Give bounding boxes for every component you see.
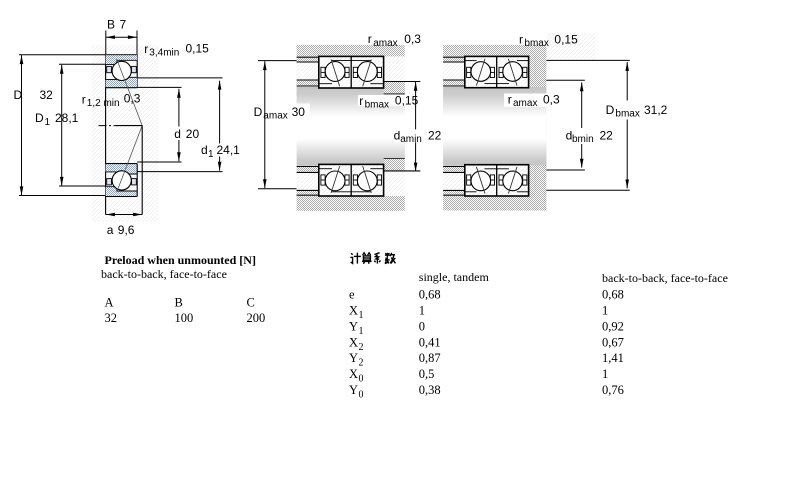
svg-text:20: 20 bbox=[186, 127, 200, 141]
svg-text:2: 2 bbox=[359, 358, 364, 369]
svg-text:C: C bbox=[247, 296, 255, 310]
svg-text:bmin: bmin bbox=[572, 134, 594, 145]
svg-text:31,2: 31,2 bbox=[644, 103, 668, 117]
svg-text:1: 1 bbox=[45, 117, 51, 128]
svg-text:0,87: 0,87 bbox=[419, 351, 441, 365]
svg-text:bmax: bmax bbox=[524, 38, 548, 49]
svg-text:1: 1 bbox=[359, 326, 364, 337]
svg-text:d: d bbox=[201, 143, 208, 157]
svg-text:amin: amin bbox=[400, 134, 422, 145]
svg-text:1: 1 bbox=[208, 149, 214, 160]
svg-text:3,4min: 3,4min bbox=[149, 48, 179, 59]
svg-text:A: A bbox=[105, 296, 114, 310]
svg-text:32: 32 bbox=[105, 311, 118, 325]
svg-text:0,92: 0,92 bbox=[602, 320, 624, 334]
svg-text:Preload when unmounted [N]: Preload when unmounted [N] bbox=[105, 253, 256, 267]
svg-text:1,41: 1,41 bbox=[602, 351, 624, 365]
svg-text:1: 1 bbox=[602, 367, 608, 381]
svg-text:Y: Y bbox=[349, 351, 358, 365]
svg-text:22: 22 bbox=[428, 129, 442, 143]
svg-text:200: 200 bbox=[247, 311, 266, 325]
svg-text:24,1: 24,1 bbox=[217, 143, 241, 157]
svg-text:r: r bbox=[144, 42, 148, 56]
svg-text:2: 2 bbox=[359, 342, 364, 353]
svg-text:0,68: 0,68 bbox=[419, 288, 441, 302]
svg-text:a: a bbox=[107, 223, 114, 237]
svg-text:28,1: 28,1 bbox=[55, 111, 79, 125]
svg-text:0,41: 0,41 bbox=[419, 336, 441, 350]
svg-text:amax: amax bbox=[263, 111, 287, 122]
svg-text:X: X bbox=[349, 304, 358, 318]
svg-text:Y: Y bbox=[349, 383, 358, 397]
svg-text:r: r bbox=[519, 33, 523, 47]
svg-text:0,15: 0,15 bbox=[186, 42, 210, 56]
svg-text:bmax: bmax bbox=[615, 109, 639, 120]
svg-text:1,2 min: 1,2 min bbox=[87, 98, 120, 109]
svg-text:r: r bbox=[508, 93, 512, 107]
svg-text:0: 0 bbox=[419, 320, 425, 334]
svg-text:0,67: 0,67 bbox=[602, 336, 624, 350]
svg-text:d: d bbox=[174, 127, 181, 141]
svg-text:0,3: 0,3 bbox=[543, 93, 560, 107]
svg-text:D: D bbox=[35, 111, 44, 125]
svg-text:bmax: bmax bbox=[365, 99, 389, 110]
svg-text:0,68: 0,68 bbox=[602, 288, 624, 302]
svg-text:e: e bbox=[349, 288, 355, 302]
svg-text:1: 1 bbox=[602, 304, 608, 318]
svg-text:r: r bbox=[82, 93, 86, 107]
svg-text:7: 7 bbox=[120, 18, 127, 32]
svg-text:0,15: 0,15 bbox=[395, 93, 419, 107]
svg-text:X: X bbox=[349, 367, 358, 381]
svg-text:back-to-back, face-to-face: back-to-back, face-to-face bbox=[602, 271, 728, 285]
svg-text:0,3: 0,3 bbox=[124, 92, 141, 106]
svg-text:D: D bbox=[606, 103, 615, 117]
svg-text:back-to-back, face-to-face: back-to-back, face-to-face bbox=[101, 267, 227, 281]
svg-text:0,5: 0,5 bbox=[419, 367, 435, 381]
svg-text:0,15: 0,15 bbox=[554, 33, 578, 47]
svg-text:9,6: 9,6 bbox=[118, 223, 135, 237]
svg-text:0,3: 0,3 bbox=[404, 32, 421, 46]
svg-text:B: B bbox=[107, 18, 115, 32]
svg-text:0,76: 0,76 bbox=[602, 383, 624, 397]
svg-text:X: X bbox=[349, 336, 358, 350]
svg-text:1: 1 bbox=[419, 304, 425, 318]
svg-text:B: B bbox=[175, 296, 183, 310]
svg-text:30: 30 bbox=[292, 105, 306, 119]
svg-text:32: 32 bbox=[40, 88, 54, 102]
svg-text:r: r bbox=[359, 94, 363, 108]
svg-text:0: 0 bbox=[359, 390, 364, 401]
svg-text:single, tandem: single, tandem bbox=[419, 270, 490, 284]
svg-text:Y: Y bbox=[349, 320, 358, 334]
svg-text:amax: amax bbox=[373, 38, 397, 49]
svg-text:r: r bbox=[368, 32, 372, 46]
svg-text:0,38: 0,38 bbox=[419, 383, 441, 397]
svg-text:22: 22 bbox=[600, 129, 614, 143]
svg-text:D: D bbox=[14, 88, 23, 102]
svg-text:D: D bbox=[254, 105, 263, 119]
svg-text:amax: amax bbox=[513, 98, 537, 109]
svg-text:0: 0 bbox=[359, 374, 364, 385]
svg-text:100: 100 bbox=[175, 311, 194, 325]
svg-text:1: 1 bbox=[359, 310, 364, 321]
